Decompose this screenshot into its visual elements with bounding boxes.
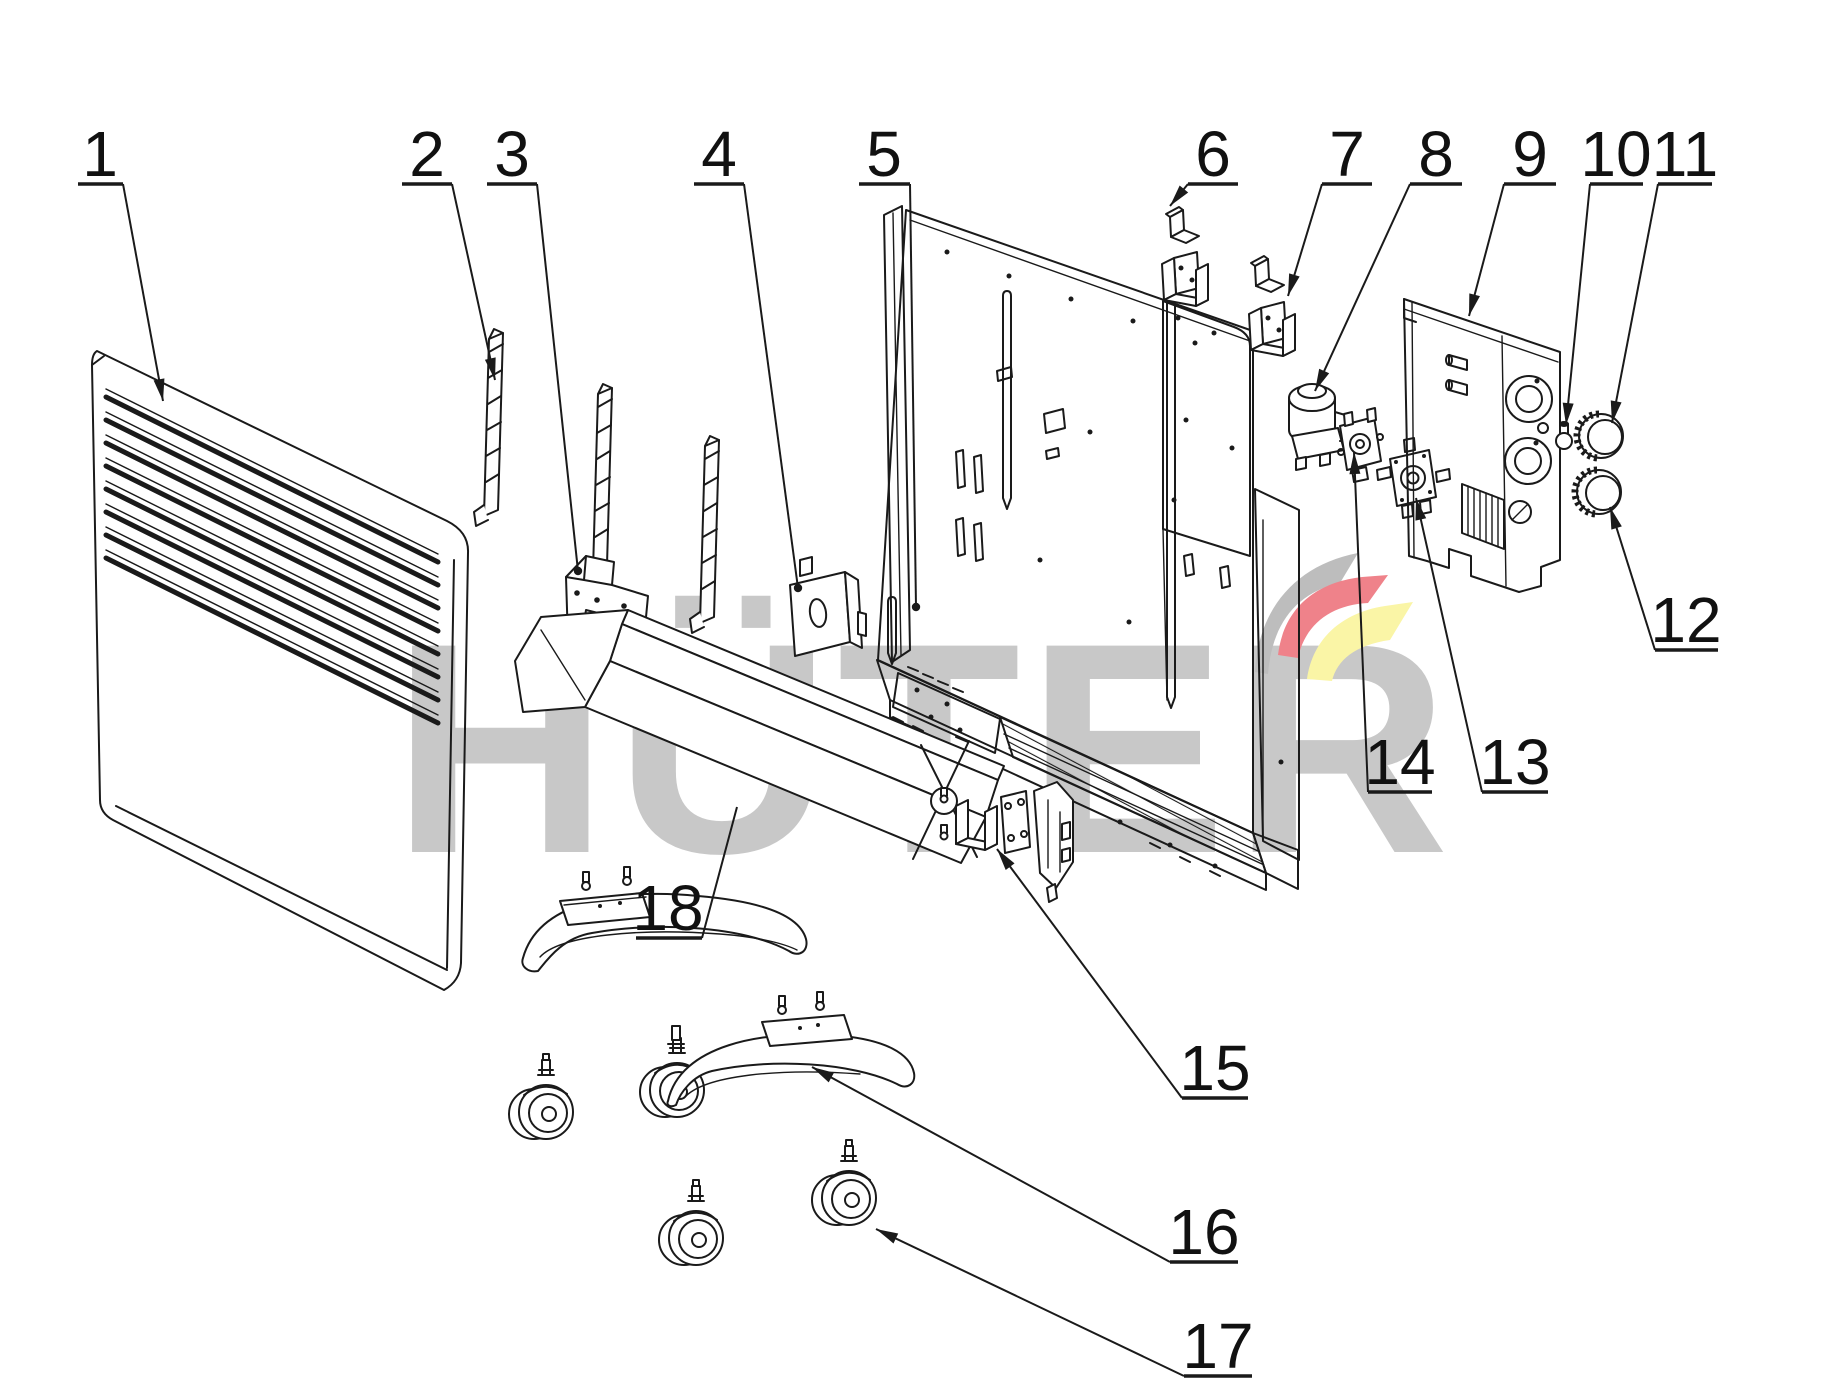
part-label-12: 12 — [1610, 507, 1722, 656]
leader-arrowhead-icon — [1610, 507, 1622, 530]
part-number-text: 12 — [1650, 584, 1721, 656]
part-number-text: 18 — [632, 872, 703, 944]
push-cap-part-10 — [1556, 422, 1572, 449]
part-label-2: 2 — [402, 118, 496, 380]
part-number-text: 15 — [1179, 1032, 1250, 1104]
part-number-text: 7 — [1329, 118, 1365, 190]
part-number-text: 17 — [1182, 1310, 1253, 1381]
part-number-text: 11 — [1652, 118, 1718, 190]
part-number-text: 5 — [866, 118, 902, 190]
part-number-text: 8 — [1418, 118, 1454, 190]
wall-bracket-part-7 — [1249, 256, 1295, 356]
leader-arrowhead-icon — [812, 1067, 834, 1082]
part-number-text: 13 — [1479, 726, 1550, 798]
leader-line — [1315, 184, 1410, 391]
leader-line — [537, 184, 578, 571]
knob-part-12 — [1575, 470, 1621, 514]
part-number-text: 14 — [1364, 726, 1435, 798]
parts-diagram-canvas: HÜTER — [0, 0, 1821, 1381]
part-number-text: 3 — [494, 118, 530, 190]
wall-bracket-part-6 — [1162, 207, 1208, 306]
leader-line — [1566, 184, 1590, 425]
leader-dot-icon — [794, 584, 802, 592]
vent-louvers — [106, 389, 438, 723]
leader-line — [812, 1067, 1170, 1262]
part-label-10: 10 — [1563, 118, 1652, 425]
leader-dot-icon — [574, 567, 582, 575]
leader-arrowhead-icon — [876, 1229, 898, 1243]
part-label-1: 1 — [78, 118, 164, 401]
part-label-9: 9 — [1469, 118, 1556, 316]
panel-screw-holes — [914, 250, 1198, 625]
leader-arrowhead-icon — [154, 378, 165, 401]
knob-part-11 — [1577, 414, 1623, 458]
part-label-7: 7 — [1288, 118, 1372, 296]
caster-wheel-part-17 — [812, 1140, 876, 1225]
part-number-text: 1 — [82, 118, 118, 190]
caster-wheel — [509, 1054, 573, 1139]
leader-arrowhead-icon — [1469, 293, 1480, 316]
leader-line — [452, 184, 495, 380]
leader-arrowhead-icon — [1288, 273, 1300, 296]
part-number-text: 10 — [1580, 118, 1651, 190]
part-number-text: 4 — [701, 118, 737, 190]
leader-line — [876, 1229, 1184, 1376]
exploded-diagram-page: HÜTER — [0, 0, 1821, 1381]
part-number-text: 6 — [1195, 118, 1231, 190]
part-number-text: 2 — [409, 118, 445, 190]
caster-wheel — [659, 1180, 723, 1265]
leader-line — [744, 184, 798, 588]
junction-box-part-4 — [790, 557, 866, 656]
leader-line — [910, 184, 916, 607]
leader-line — [123, 184, 163, 401]
part-number-text: 16 — [1168, 1196, 1239, 1268]
part-number-text: 9 — [1512, 118, 1548, 190]
leader-dot-icon — [912, 603, 920, 611]
part-label-6: 6 — [1170, 118, 1238, 206]
part-label-16: 16 — [812, 1067, 1240, 1268]
leader-line — [1612, 184, 1658, 423]
leader-line — [1610, 507, 1655, 650]
